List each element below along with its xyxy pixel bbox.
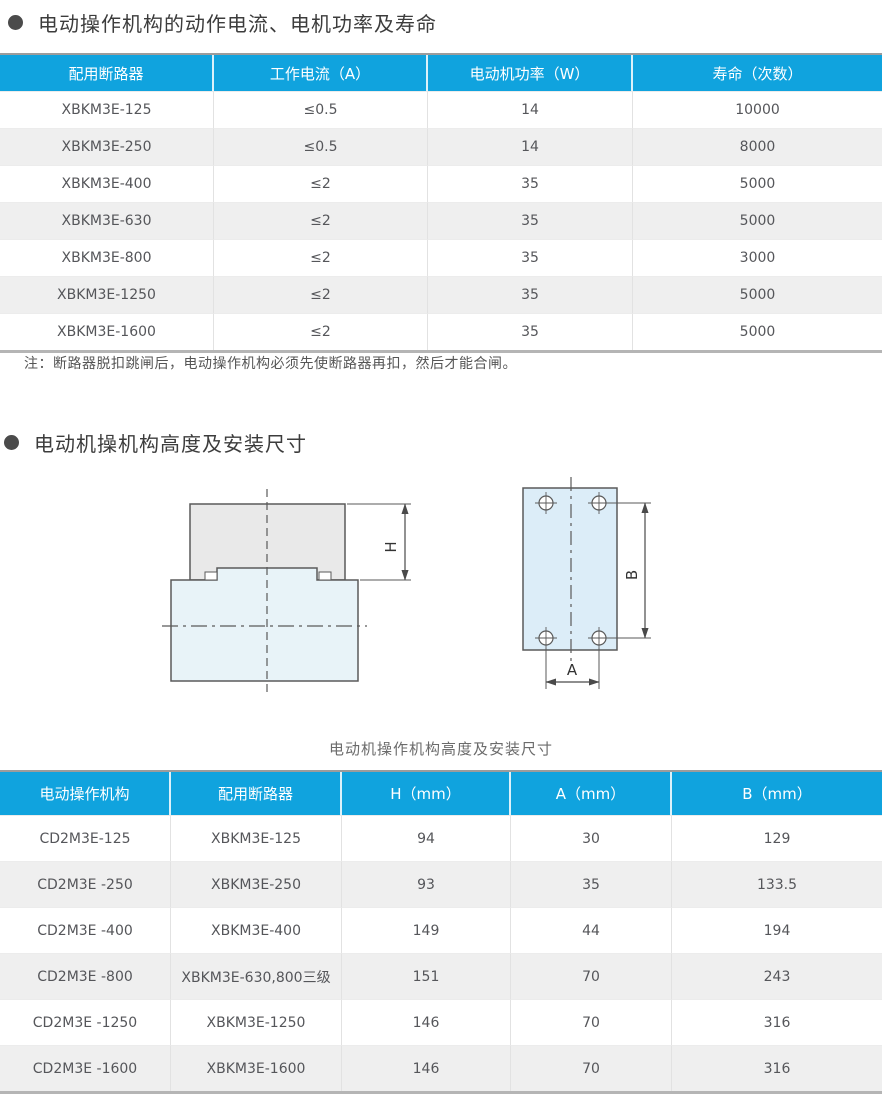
table-cell: XBKM3E-800 (0, 239, 214, 276)
table-row: CD2M3E -400 XBKM3E-400 149 44 194 (0, 907, 882, 953)
table-cell: CD2M3E-125 (0, 815, 171, 861)
table-cell: 316 (672, 1045, 882, 1091)
table-cell: 8000 (633, 128, 882, 165)
table-cell: XBKM3E-250 (0, 128, 214, 165)
table-row: CD2M3E -1250 XBKM3E-1250 146 70 316 (0, 999, 882, 1045)
table-cell: 3000 (633, 239, 882, 276)
table-cell: 93 (342, 861, 511, 907)
table-cell: CD2M3E -800 (0, 953, 171, 999)
table-cell: XBKM3E-250 (171, 861, 342, 907)
table-cell: 70 (511, 953, 672, 999)
power-life-table: 配用断路器 工作电流（A） 电动机功率（W） 寿命（次数） XBKM3E-125… (0, 53, 882, 353)
mount-tab-right (319, 572, 331, 580)
bullet-icon (4, 435, 19, 450)
table-cell: 10000 (633, 91, 882, 128)
table-row: XBKM3E-630 ≤2 35 5000 (0, 202, 882, 239)
table-cell: 35 (428, 313, 633, 350)
table-cell: XBKM3E-630 (0, 202, 214, 239)
table-cell: ≤0.5 (214, 128, 428, 165)
table-row: XBKM3E-125 ≤0.5 14 10000 (0, 91, 882, 128)
table-cell: ≤2 (214, 313, 428, 350)
table-cell: 316 (672, 999, 882, 1045)
table-cell: ≤2 (214, 239, 428, 276)
table-cell: 243 (672, 953, 882, 999)
diagram-caption: 电动机操作机构高度及安装尺寸 (0, 738, 882, 759)
breaker-body (171, 568, 358, 681)
table-cell: 35 (428, 276, 633, 313)
installation-dimension-drawing: H B A (0, 460, 882, 710)
table-cell: CD2M3E -1250 (0, 999, 171, 1045)
table-cell: CD2M3E -250 (0, 861, 171, 907)
table-cell: XBKM3E-1600 (171, 1045, 342, 1091)
table-row: XBKM3E-800 ≤2 35 3000 (0, 239, 882, 276)
table-row: CD2M3E-125 XBKM3E-125 94 30 129 (0, 815, 882, 861)
table-cell: 151 (342, 953, 511, 999)
table-header-row: 配用断路器 工作电流（A） 电动机功率（W） 寿命（次数） (0, 55, 882, 91)
table-cell: 44 (511, 907, 672, 953)
bullet-icon (8, 15, 23, 30)
column-header: 电动操作机构 (0, 772, 171, 815)
mount-tab-left (205, 572, 217, 580)
table-cell: 146 (342, 1045, 511, 1091)
section1-heading: 电动操作机构的动作电流、电机功率及寿命 (8, 8, 437, 37)
table-row: CD2M3E -1600 XBKM3E-1600 146 70 316 (0, 1045, 882, 1091)
column-header: 配用断路器 (171, 772, 342, 815)
section2-heading-text: 电动机操机构高度及安装尺寸 (34, 428, 307, 457)
table-row: XBKM3E-400 ≤2 35 5000 (0, 165, 882, 202)
table-cell: 94 (342, 815, 511, 861)
table-cell: 35 (428, 165, 633, 202)
dim-label-h: H (382, 541, 400, 552)
table-cell: ≤2 (214, 202, 428, 239)
table-cell: 35 (511, 861, 672, 907)
table-cell: 70 (511, 1045, 672, 1091)
column-header: A（mm） (511, 772, 672, 815)
table-cell: 70 (511, 999, 672, 1045)
dim-label-a: A (567, 661, 578, 679)
column-header: 寿命（次数） (633, 55, 882, 91)
table-cell: ≤2 (214, 165, 428, 202)
mounting-plate (523, 488, 617, 650)
table-cell: XBKM3E-400 (171, 907, 342, 953)
mounting-plate-top-view (523, 477, 651, 689)
section1-heading-text: 电动操作机构的动作电流、电机功率及寿命 (38, 8, 437, 37)
table-cell: XBKM3E-1600 (0, 313, 214, 350)
dimension-table: 电动操作机构 配用断路器 H（mm） A（mm） B（mm） CD2M3E-12… (0, 770, 882, 1094)
table-cell: 35 (428, 202, 633, 239)
motor-operator-front-view (162, 489, 411, 693)
table-cell: CD2M3E -400 (0, 907, 171, 953)
table-header-row: 电动操作机构 配用断路器 H（mm） A（mm） B（mm） (0, 772, 882, 815)
table-cell: XBKM3E-630,800三级 (171, 953, 342, 999)
table-cell: 5000 (633, 165, 882, 202)
table-row: XBKM3E-1250 ≤2 35 5000 (0, 276, 882, 313)
table-cell: 194 (672, 907, 882, 953)
column-header: H（mm） (342, 772, 511, 815)
table-cell: XBKM3E-125 (0, 91, 214, 128)
table-footnote: 注：断路器脱扣跳闸后，电动操作机构必须先使断路器再扣，然后才能合闸。 (24, 353, 517, 373)
column-header: 工作电流（A） (214, 55, 428, 91)
table-cell: XBKM3E-125 (171, 815, 342, 861)
table-cell: XBKM3E-1250 (0, 276, 214, 313)
column-header: 电动机功率（W） (428, 55, 633, 91)
table-cell: 5000 (633, 276, 882, 313)
table-cell: 149 (342, 907, 511, 953)
table-row: XBKM3E-1600 ≤2 35 5000 (0, 313, 882, 350)
table-row: CD2M3E -800 XBKM3E-630,800三级 151 70 243 (0, 953, 882, 999)
section2-heading: 电动机操机构高度及安装尺寸 (4, 428, 307, 457)
table-cell: 5000 (633, 313, 882, 350)
column-header: B（mm） (672, 772, 882, 815)
dim-label-b: B (623, 570, 641, 580)
table-cell: 30 (511, 815, 672, 861)
table-cell: ≤2 (214, 276, 428, 313)
table-row: XBKM3E-250 ≤0.5 14 8000 (0, 128, 882, 165)
table-cell: 129 (672, 815, 882, 861)
table-cell: ≤0.5 (214, 91, 428, 128)
column-header: 配用断路器 (0, 55, 214, 91)
table-cell: 14 (428, 91, 633, 128)
table-cell: 146 (342, 999, 511, 1045)
table-cell: XBKM3E-1250 (171, 999, 342, 1045)
table-cell: 35 (428, 239, 633, 276)
table-cell: XBKM3E-400 (0, 165, 214, 202)
table-row: CD2M3E -250 XBKM3E-250 93 35 133.5 (0, 861, 882, 907)
table-cell: 133.5 (672, 861, 882, 907)
table-cell: CD2M3E -1600 (0, 1045, 171, 1091)
table-cell: 5000 (633, 202, 882, 239)
table-cell: 14 (428, 128, 633, 165)
